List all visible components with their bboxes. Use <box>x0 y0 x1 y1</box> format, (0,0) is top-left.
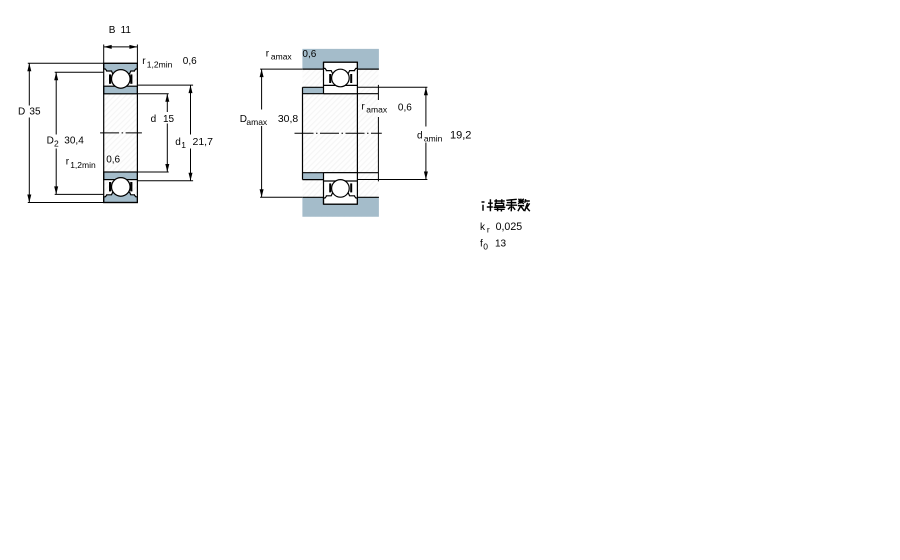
svg-text:1,2min: 1,2min <box>147 59 173 69</box>
svg-text:r: r <box>266 49 270 60</box>
svg-text:d: d <box>151 114 157 125</box>
svg-text:1,2min: 1,2min <box>70 160 96 170</box>
svg-text:amax: amax <box>366 105 388 115</box>
svg-text:0: 0 <box>483 241 488 251</box>
svg-text:r: r <box>66 156 70 167</box>
svg-text:r: r <box>487 225 490 235</box>
svg-text:amax: amax <box>271 51 293 61</box>
svg-text:amax: amax <box>246 117 268 127</box>
svg-text:0,6: 0,6 <box>106 155 120 166</box>
svg-text:11: 11 <box>121 25 132 36</box>
svg-text:30,4: 30,4 <box>64 136 84 147</box>
svg-text:1: 1 <box>181 140 186 150</box>
svg-text:30,8: 30,8 <box>278 114 298 125</box>
svg-text:21,7: 21,7 <box>193 136 214 148</box>
svg-text:amin: amin <box>424 134 443 144</box>
svg-text:D: D <box>47 136 54 147</box>
svg-text:D: D <box>18 107 25 118</box>
svg-text:k: k <box>480 222 486 233</box>
svg-text:0,025: 0,025 <box>496 221 523 233</box>
svg-text:0,6: 0,6 <box>398 103 412 114</box>
svg-text:2: 2 <box>54 139 59 149</box>
svg-text:r: r <box>142 56 146 67</box>
svg-text:13: 13 <box>495 238 507 249</box>
svg-text:19,2: 19,2 <box>450 130 471 142</box>
svg-text:35: 35 <box>29 107 41 118</box>
svg-text:0,6: 0,6 <box>183 56 197 67</box>
svg-text:15: 15 <box>163 114 175 125</box>
svg-text:d: d <box>417 131 423 142</box>
svg-text:0,6: 0,6 <box>302 49 316 60</box>
svg-text:d: d <box>175 137 181 148</box>
svg-text:B: B <box>109 25 116 36</box>
